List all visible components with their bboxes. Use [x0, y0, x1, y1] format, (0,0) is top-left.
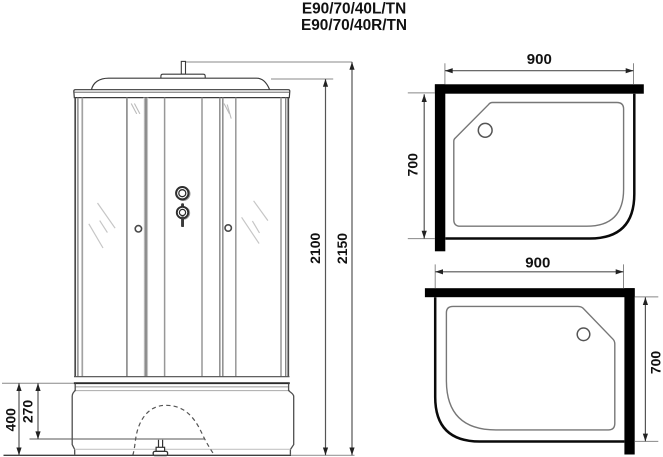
svg-text:900: 900	[527, 51, 552, 68]
svg-text:2100: 2100	[307, 233, 323, 264]
svg-text:270: 270	[20, 400, 36, 424]
svg-text:900: 900	[525, 254, 550, 271]
svg-text:E90/70/40R/TN: E90/70/40R/TN	[301, 17, 407, 34]
svg-text:2150: 2150	[334, 233, 350, 264]
svg-text:400: 400	[3, 408, 19, 432]
svg-text:700: 700	[648, 351, 663, 375]
svg-text:700: 700	[405, 153, 421, 177]
svg-text:E90/70/40L/TN: E90/70/40L/TN	[302, 1, 406, 18]
